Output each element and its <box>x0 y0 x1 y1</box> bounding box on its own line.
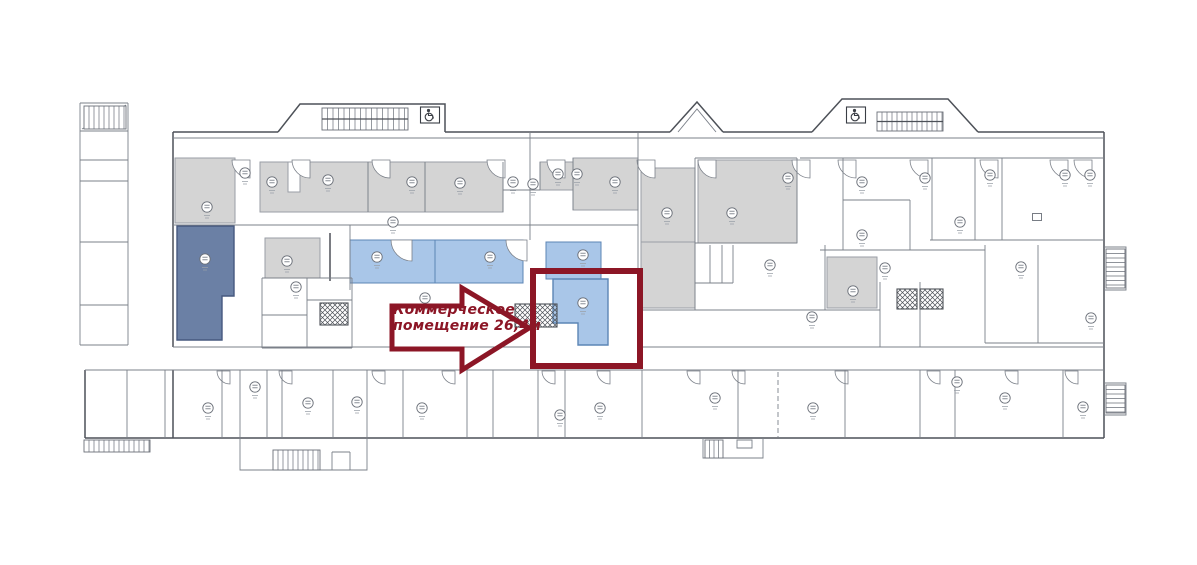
room-number-marker <box>240 168 250 184</box>
door-arc <box>1005 371 1018 384</box>
door-arc <box>1065 371 1078 384</box>
door-arc <box>372 371 385 384</box>
wheelchair-icon <box>847 107 866 123</box>
stairs <box>84 440 150 452</box>
room-number-marker <box>1078 402 1088 418</box>
room-number-marker <box>291 282 301 298</box>
room-number-marker <box>388 217 398 233</box>
room-gray-p <box>265 238 320 278</box>
room-number-marker <box>595 403 605 419</box>
door-arc <box>279 371 292 384</box>
room-number-marker <box>555 410 565 426</box>
walls-outer-west <box>85 132 173 438</box>
stairs <box>705 440 723 458</box>
room-number-marker <box>303 398 313 414</box>
door-arc <box>732 371 745 384</box>
door-arc <box>217 371 230 384</box>
room-number-marker <box>807 312 817 328</box>
room-gray-b <box>260 162 368 212</box>
stairs <box>322 108 408 130</box>
door-arc <box>838 160 856 178</box>
room-number-marker <box>952 377 962 393</box>
roof-peak <box>670 102 723 132</box>
icons-layer <box>421 107 866 123</box>
room-number-marker <box>1016 262 1026 278</box>
stairs <box>1106 249 1125 288</box>
floor-plan <box>0 0 1197 565</box>
room-number-marker <box>203 403 213 419</box>
room-number-marker <box>1086 313 1096 329</box>
room-number-marker <box>1085 170 1095 186</box>
door-arc <box>597 371 610 384</box>
door-arc <box>637 160 655 178</box>
door-arc <box>442 371 455 384</box>
annotation-line2: помещение 26,4м <box>393 319 541 335</box>
room-number-marker <box>352 397 362 413</box>
room-gray-h <box>641 242 695 308</box>
hatched-area <box>320 303 348 325</box>
annotation-label: Коммерческое помещение 26,4м <box>393 303 541 334</box>
room-gray-a <box>175 158 235 223</box>
room-number-marker <box>417 403 427 419</box>
room-number-marker <box>250 382 260 398</box>
room-gray-g <box>641 168 695 242</box>
stairs <box>84 106 126 129</box>
room-number-marker <box>857 177 867 193</box>
door-arc <box>927 371 940 384</box>
stairs <box>1106 385 1125 413</box>
room-number-marker <box>765 260 775 276</box>
wheelchair-icon <box>421 107 440 123</box>
room-number-marker <box>528 179 538 195</box>
hatched-area <box>897 289 917 309</box>
room-number-marker <box>880 263 890 279</box>
room-tag <box>1033 214 1042 221</box>
walls-left-wing <box>80 103 165 438</box>
hatched-area <box>920 289 943 309</box>
room-gray-f <box>573 158 638 210</box>
room-slate <box>177 226 234 340</box>
door-arc <box>687 371 700 384</box>
stairs <box>273 450 320 470</box>
annotation-line1: Коммерческое <box>393 303 541 319</box>
room-number-marker <box>508 177 518 193</box>
room-number-marker <box>955 217 965 233</box>
roof-peak-inner <box>678 109 716 132</box>
floor-plan-canvas: Коммерческое помещение 26,4м <box>0 0 1197 565</box>
room-number-marker <box>808 403 818 419</box>
door-arc <box>542 371 555 384</box>
room-number-marker <box>857 230 867 246</box>
room-number-marker <box>985 170 995 186</box>
stairs <box>877 112 943 131</box>
room-number-marker <box>1000 393 1010 409</box>
room-number-marker <box>920 173 930 189</box>
door-arc <box>835 371 848 384</box>
room-number-marker <box>1060 170 1070 186</box>
room-number-marker <box>710 393 720 409</box>
room-gray-j <box>827 257 877 308</box>
